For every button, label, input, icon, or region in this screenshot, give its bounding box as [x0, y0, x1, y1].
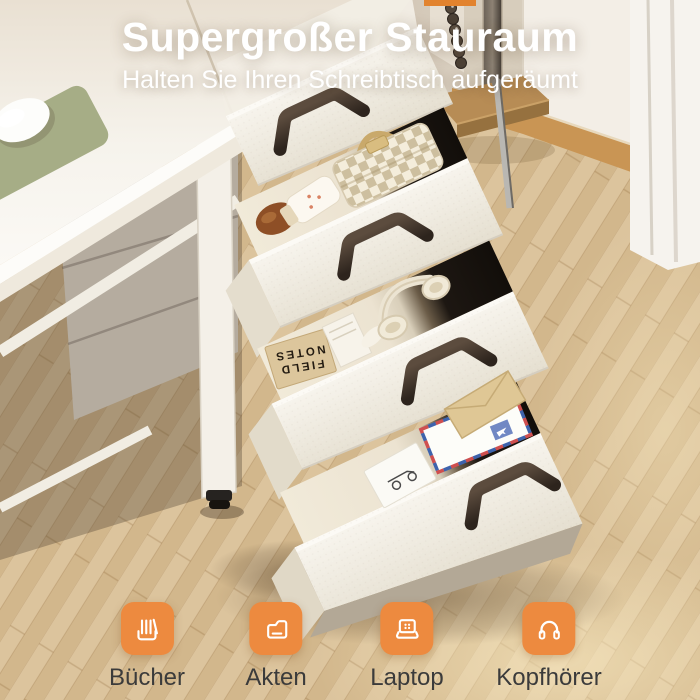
- orange-object: [424, 0, 476, 6]
- feature-laptop: Laptop: [370, 602, 443, 692]
- folder-icon: [250, 602, 303, 655]
- feature-files: Akten: [245, 602, 306, 692]
- leg-foot: [206, 490, 232, 501]
- feature-label: Bücher: [109, 664, 185, 692]
- headphones-icon: [523, 602, 576, 655]
- feature-label: Laptop: [370, 664, 443, 692]
- feature-headphones: Kopfhörer: [496, 602, 601, 692]
- feature-books: Bücher: [109, 602, 185, 692]
- books-icon: [120, 602, 173, 655]
- feature-label: Akten: [245, 664, 306, 692]
- product-photo: FIELD NOTES: [0, 0, 700, 700]
- headline-title: Supergroßer Stauraum: [0, 14, 700, 61]
- product-image: FIELD NOTES: [0, 0, 700, 700]
- laptop-icon: [381, 602, 434, 655]
- feature-label: Kopfhörer: [496, 664, 601, 692]
- headline-subtitle: Halten Sie Ihren Schreibtisch aufgeräumt: [0, 66, 700, 95]
